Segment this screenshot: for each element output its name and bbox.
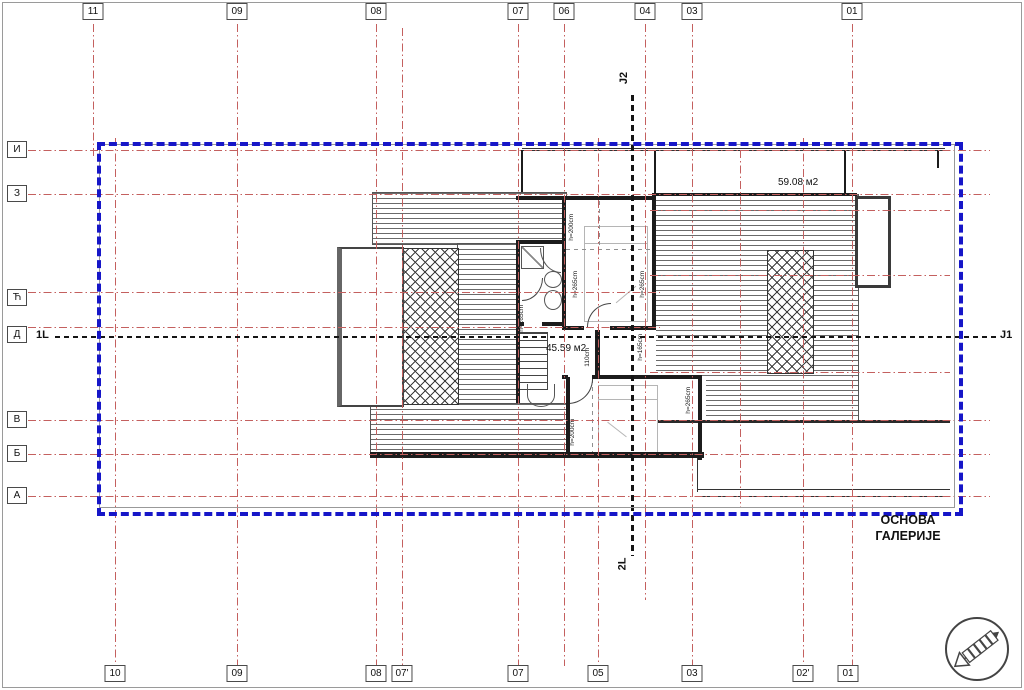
grid-label-left-i: И <box>7 141 27 158</box>
grid-label-left-a: А <box>7 487 27 504</box>
floor-plan-sheet: 1L J1 J2 2L 59.08 м2 45.59 м2 h=200cm h=… <box>0 0 1024 690</box>
site-boundary <box>97 142 963 516</box>
grid-label-bottom-08: 08 <box>366 665 387 682</box>
grid-label-bottom-03: 03 <box>682 665 703 682</box>
section-label-j2: J2 <box>618 72 630 84</box>
logo-north-arrow-icon <box>943 615 1011 683</box>
grid-label-top-03: 03 <box>682 3 703 20</box>
section-label-1l: 1L <box>36 329 49 341</box>
grid-label-top-09: 09 <box>227 3 248 20</box>
grid-label-left-b: Б <box>7 445 27 462</box>
grid-label-bottom-05: 05 <box>588 665 609 682</box>
grid-label-top-01: 01 <box>842 3 863 20</box>
grid-label-top-11: 11 <box>83 3 104 20</box>
grid-label-bottom-07p: 07' <box>391 665 412 682</box>
grid-label-top-07: 07 <box>508 3 529 20</box>
grid-line-v-11 <box>93 24 94 158</box>
drawing-title-line2: ГАЛЕРИЈЕ <box>858 529 958 545</box>
section-label-j1: J1 <box>1000 329 1012 341</box>
grid-label-left-z: З <box>7 185 27 202</box>
logo-stamp <box>943 615 1011 683</box>
grid-label-bottom-02p: 02' <box>792 665 813 682</box>
grid-label-left-d: Д <box>7 326 27 343</box>
grid-label-bottom-10: 10 <box>105 665 126 682</box>
grid-label-bottom-07: 07 <box>508 665 529 682</box>
grid-label-bottom-01: 01 <box>838 665 859 682</box>
drawing-title-line1: ОСНОВА <box>858 513 958 529</box>
drawing-title: ОСНОВА ГАЛЕРИЈЕ <box>858 513 958 544</box>
grid-label-left-v: В <box>7 411 27 428</box>
grid-label-top-08: 08 <box>366 3 387 20</box>
grid-label-top-04: 04 <box>635 3 656 20</box>
grid-label-bottom-09: 09 <box>227 665 248 682</box>
grid-label-top-06: 06 <box>554 3 575 20</box>
section-label-2l: 2L <box>616 558 628 571</box>
grid-label-left-tj: Ћ <box>7 289 27 306</box>
